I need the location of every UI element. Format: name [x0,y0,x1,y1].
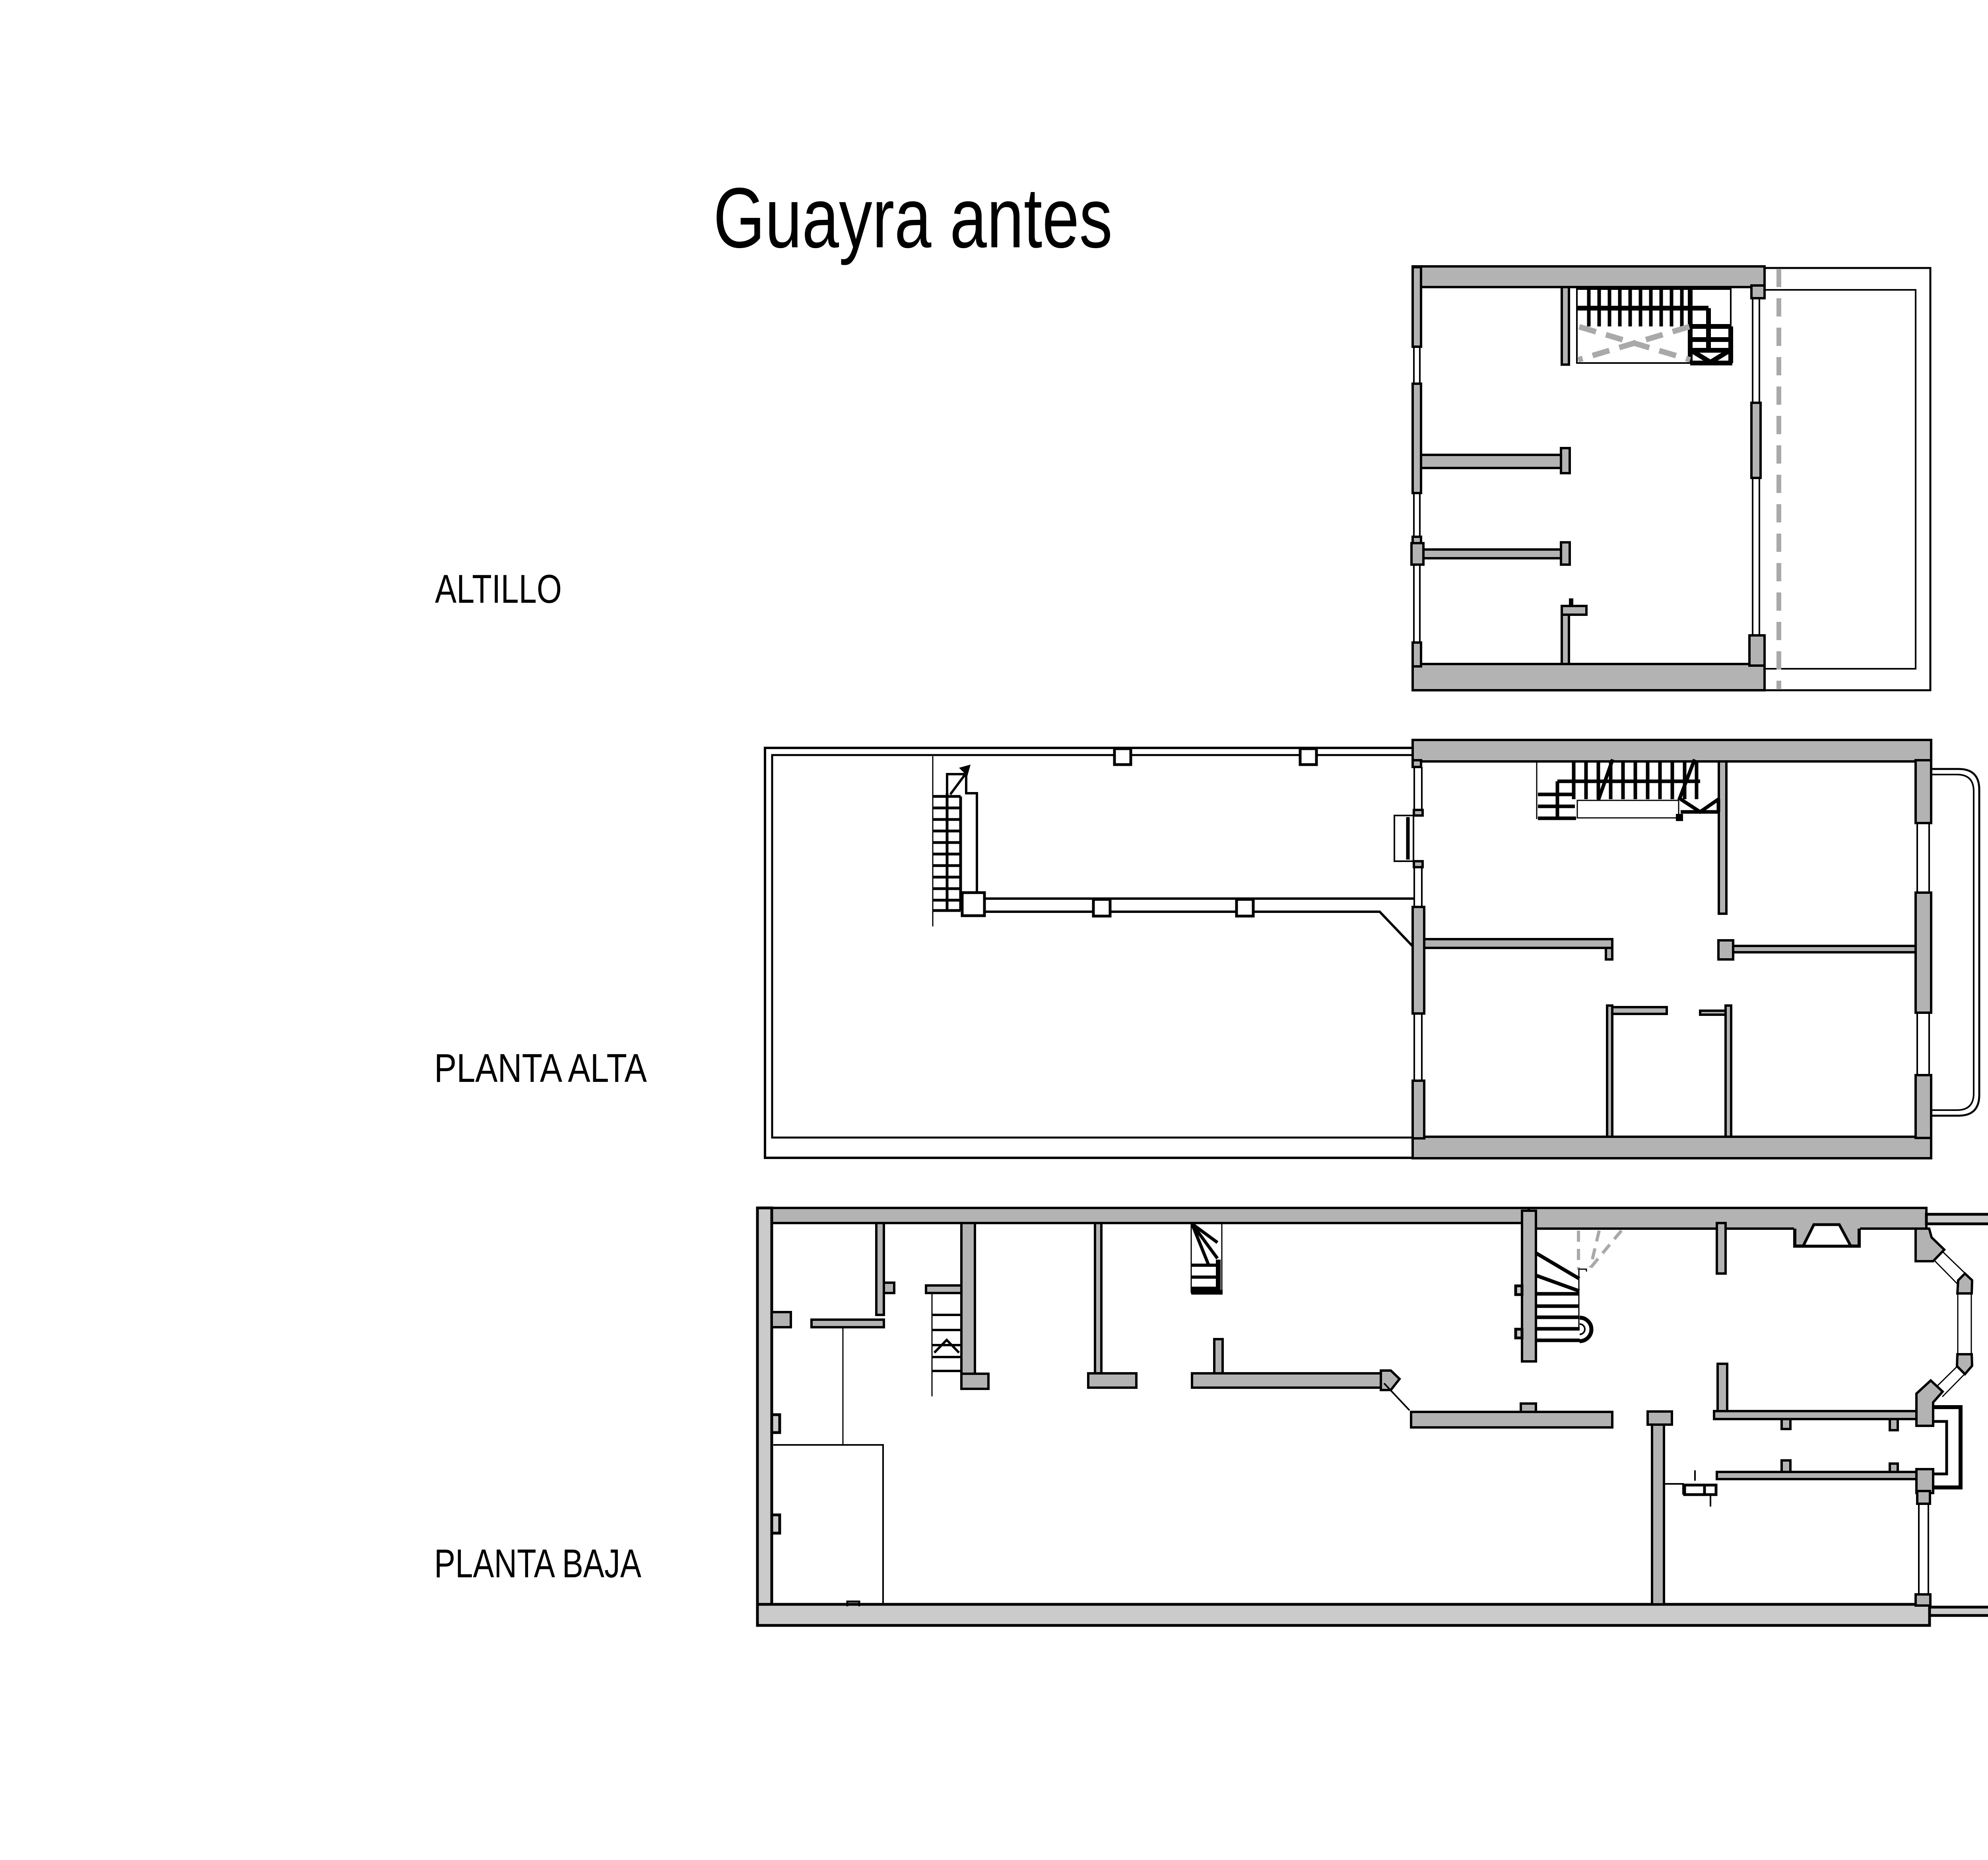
svg-text:PLANTA ALTA: PLANTA ALTA [434,1046,647,1091]
svg-text:PLANTA BAJA: PLANTA BAJA [434,1542,641,1586]
svg-text:Guayra antes: Guayra antes [713,170,1112,266]
svg-text:ALTILLO: ALTILLO [435,567,562,612]
